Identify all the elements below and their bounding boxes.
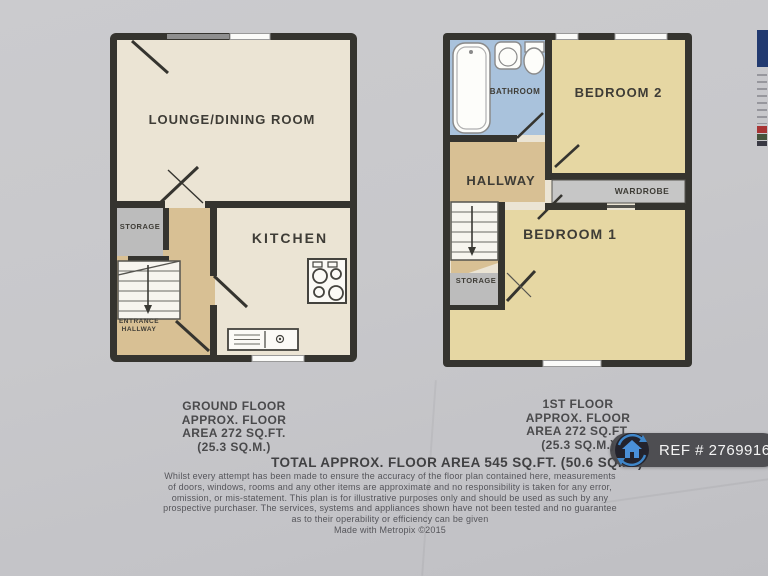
kitchen-label: KITCHEN — [220, 230, 360, 246]
entrance-hallway-line2: HALLWAY — [110, 326, 168, 334]
bedroom2-label: BEDROOM 2 — [552, 85, 685, 100]
first-storage-label: STORAGE — [446, 276, 506, 285]
page-edge-red — [757, 126, 767, 133]
basin-icon — [495, 42, 521, 69]
house-icon — [613, 431, 651, 469]
floorplan-photo: LOUNGE/DINING ROOM STORAGE KITCHEN ENTRA… — [0, 0, 768, 576]
ground-stairs-icon — [118, 261, 180, 319]
ref-label: REF # 2769916 — [659, 442, 768, 459]
disclaimer-line2: of doors, windows, rooms and any other i… — [110, 482, 670, 493]
ground-floor-drawing — [110, 33, 357, 362]
first-caption-line1: 1ST FLOOR — [478, 398, 678, 412]
hob-icon — [308, 259, 346, 303]
disclaimer-line1: Whilst every attempt has been made to en… — [110, 471, 670, 482]
ground-floor-caption: GROUND FLOOR APPROX. FLOOR AREA 272 SQ.F… — [134, 400, 334, 454]
entrance-hallway-line1: ENTRANCE — [110, 318, 168, 326]
first-hallway-label: HALLWAY — [453, 173, 549, 188]
wardrobe-label: WARDROBE — [592, 186, 692, 196]
first-floor-plan: BATHROOM BEDROOM 2 HALLWAY WARDROBE STOR… — [443, 33, 692, 367]
disclaimer-text: Whilst every attempt has been made to en… — [110, 471, 670, 536]
disclaimer-line5: as to their operability or efficiency ca… — [110, 514, 670, 525]
page-edge-navy — [757, 30, 768, 67]
bathroom-label: BATHROOM — [483, 87, 547, 96]
ground-floor-plan: LOUNGE/DINING ROOM STORAGE KITCHEN ENTRA… — [110, 33, 357, 362]
page-edge-green — [757, 134, 767, 140]
ground-caption-line3: AREA 272 SQ.FT. — [134, 427, 334, 441]
sink-icon — [228, 329, 298, 350]
lounge-label: LOUNGE/DINING ROOM — [122, 112, 342, 127]
ground-caption-line1: GROUND FLOOR — [134, 400, 334, 414]
page-edge-dark — [757, 141, 767, 146]
page-edge-smalltext — [757, 74, 767, 124]
ground-caption-line4: (25.3 SQ.M.) — [134, 441, 334, 455]
bedroom1-label: BEDROOM 1 — [490, 226, 650, 242]
metropix-credit: Made with Metropix ©2015 — [110, 525, 670, 536]
total-area-text: TOTAL APPROX. FLOOR AREA 545 SQ.FT. (50.… — [257, 455, 657, 470]
toilet-icon — [524, 42, 544, 74]
ground-caption-line2: APPROX. FLOOR — [134, 414, 334, 428]
ground-storage-label: STORAGE — [110, 222, 170, 231]
disclaimer-line3: omission, or mis-statement. This plan is… — [110, 493, 670, 504]
first-caption-line2: APPROX. FLOOR — [478, 412, 678, 426]
disclaimer-line4: prospective purchaser. The services, sys… — [110, 503, 670, 514]
entrance-hallway-label: ENTRANCE HALLWAY — [110, 318, 168, 333]
first-floor-drawing — [443, 33, 692, 367]
ref-badge: REF # 2769916 — [610, 433, 768, 467]
